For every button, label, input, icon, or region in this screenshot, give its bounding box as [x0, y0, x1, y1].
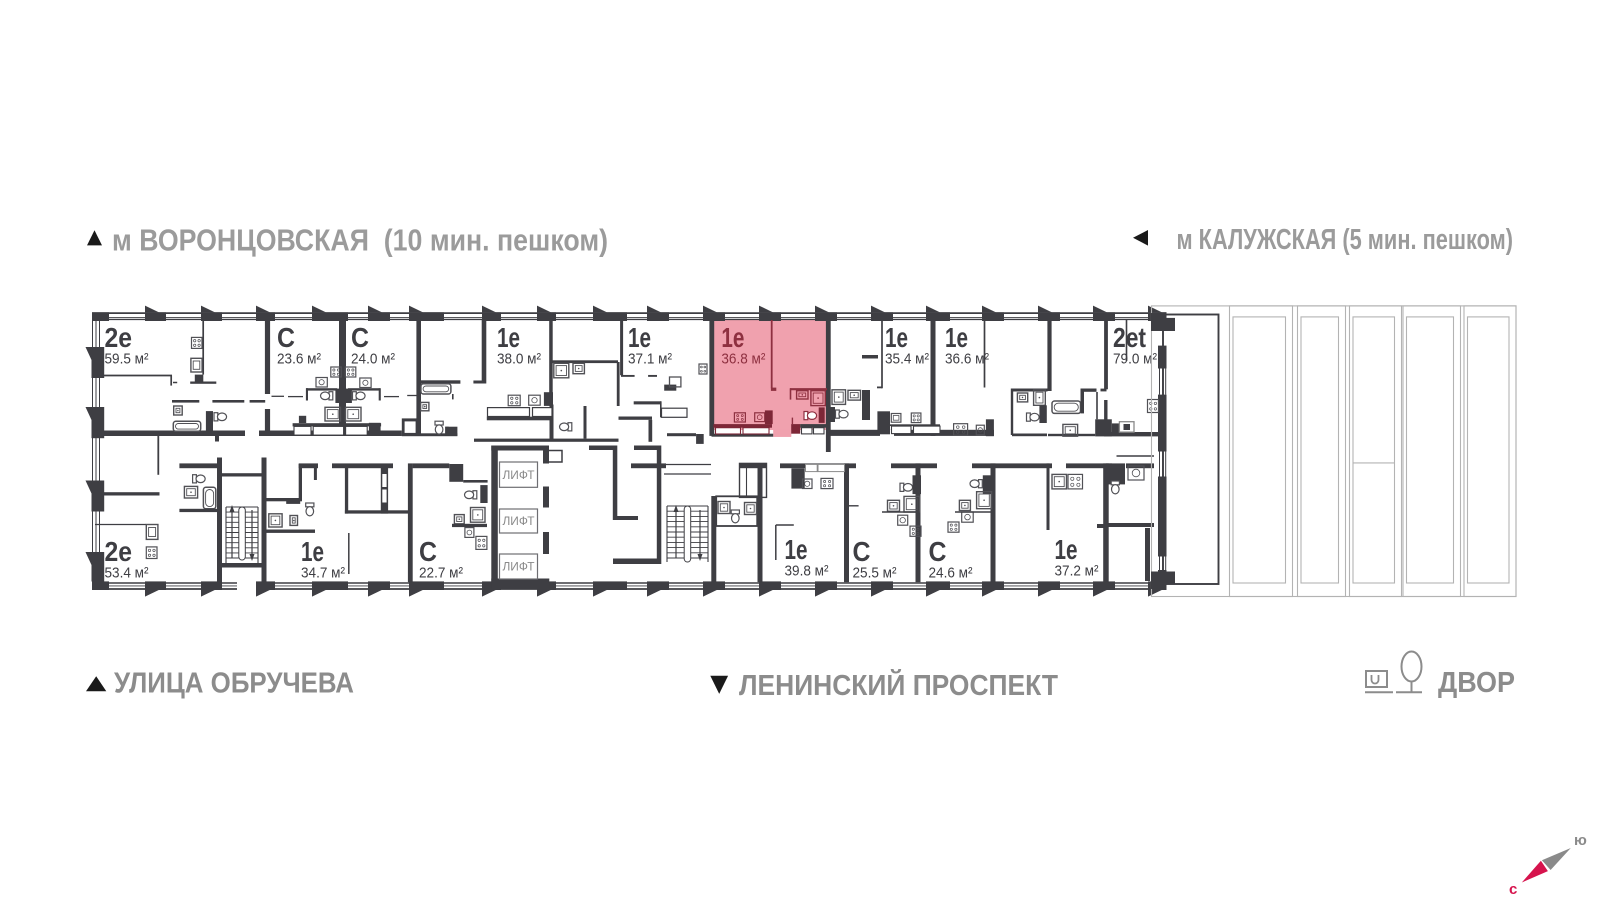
- svg-text:ЛИФТ: ЛИФТ: [503, 516, 535, 528]
- svg-text:24.6 м²: 24.6 м²: [929, 564, 973, 581]
- svg-text:ЛЕНИНСКИЙ ПРОСПЕКТ: ЛЕНИНСКИЙ ПРОСПЕКТ: [739, 668, 1058, 702]
- svg-text:36.6 м²: 36.6 м²: [945, 350, 989, 367]
- svg-text:22.7 м²: 22.7 м²: [419, 564, 463, 581]
- svg-text:УЛИЦА ОБРУЧЕВА: УЛИЦА ОБРУЧЕВА: [114, 668, 354, 700]
- svg-text:34.7 м²: 34.7 м²: [301, 564, 345, 581]
- svg-text:2et: 2et: [1113, 322, 1146, 353]
- svg-text:м ВОРОНЦОВСКАЯ (10 мин. пешко: м ВОРОНЦОВСКАЯ (10 мин. пешком): [112, 223, 608, 258]
- svg-text:ЛИФТ: ЛИФТ: [503, 470, 535, 482]
- svg-text:С: С: [419, 536, 437, 567]
- svg-text:1е: 1е: [785, 534, 808, 565]
- svg-text:59.5 м²: 59.5 м²: [105, 350, 149, 367]
- svg-text:53.4 м²: 53.4 м²: [105, 564, 149, 581]
- svg-text:ю: ю: [1574, 832, 1587, 849]
- svg-text:36.8 м²: 36.8 м²: [721, 350, 765, 367]
- svg-text:39.8 м²: 39.8 м²: [785, 562, 829, 579]
- svg-text:м КАЛУЖСКАЯ (5 мин. пешком): м КАЛУЖСКАЯ (5 мин. пешком): [1177, 224, 1514, 256]
- svg-text:1е: 1е: [497, 322, 520, 353]
- svg-text:С: С: [351, 322, 369, 353]
- svg-text:2е: 2е: [105, 322, 133, 353]
- svg-text:1е: 1е: [301, 536, 324, 567]
- svg-text:ДВОР: ДВОР: [1438, 667, 1515, 699]
- svg-text:С: С: [853, 536, 871, 567]
- svg-text:1е: 1е: [945, 322, 968, 353]
- svg-text:ЛИФТ: ЛИФТ: [503, 562, 535, 574]
- svg-text:24.0 м²: 24.0 м²: [351, 350, 395, 367]
- svg-text:1е: 1е: [628, 322, 651, 353]
- svg-text:1е: 1е: [885, 322, 908, 353]
- svg-text:С: С: [277, 322, 295, 353]
- svg-text:1е: 1е: [1055, 534, 1078, 565]
- svg-text:23.6 м²: 23.6 м²: [277, 350, 321, 367]
- svg-text:37.1 м²: 37.1 м²: [628, 350, 672, 367]
- svg-text:с: с: [1509, 881, 1517, 898]
- svg-text:38.0 м²: 38.0 м²: [497, 350, 541, 367]
- svg-text:2е: 2е: [105, 536, 133, 567]
- svg-text:35.4 м²: 35.4 м²: [885, 350, 929, 367]
- svg-text:1е: 1е: [721, 322, 744, 353]
- svg-text:25.5 м²: 25.5 м²: [853, 564, 897, 581]
- svg-text:С: С: [929, 536, 947, 567]
- svg-text:79.0 м²: 79.0 м²: [1113, 350, 1157, 367]
- svg-text:37.2 м²: 37.2 м²: [1055, 562, 1099, 579]
